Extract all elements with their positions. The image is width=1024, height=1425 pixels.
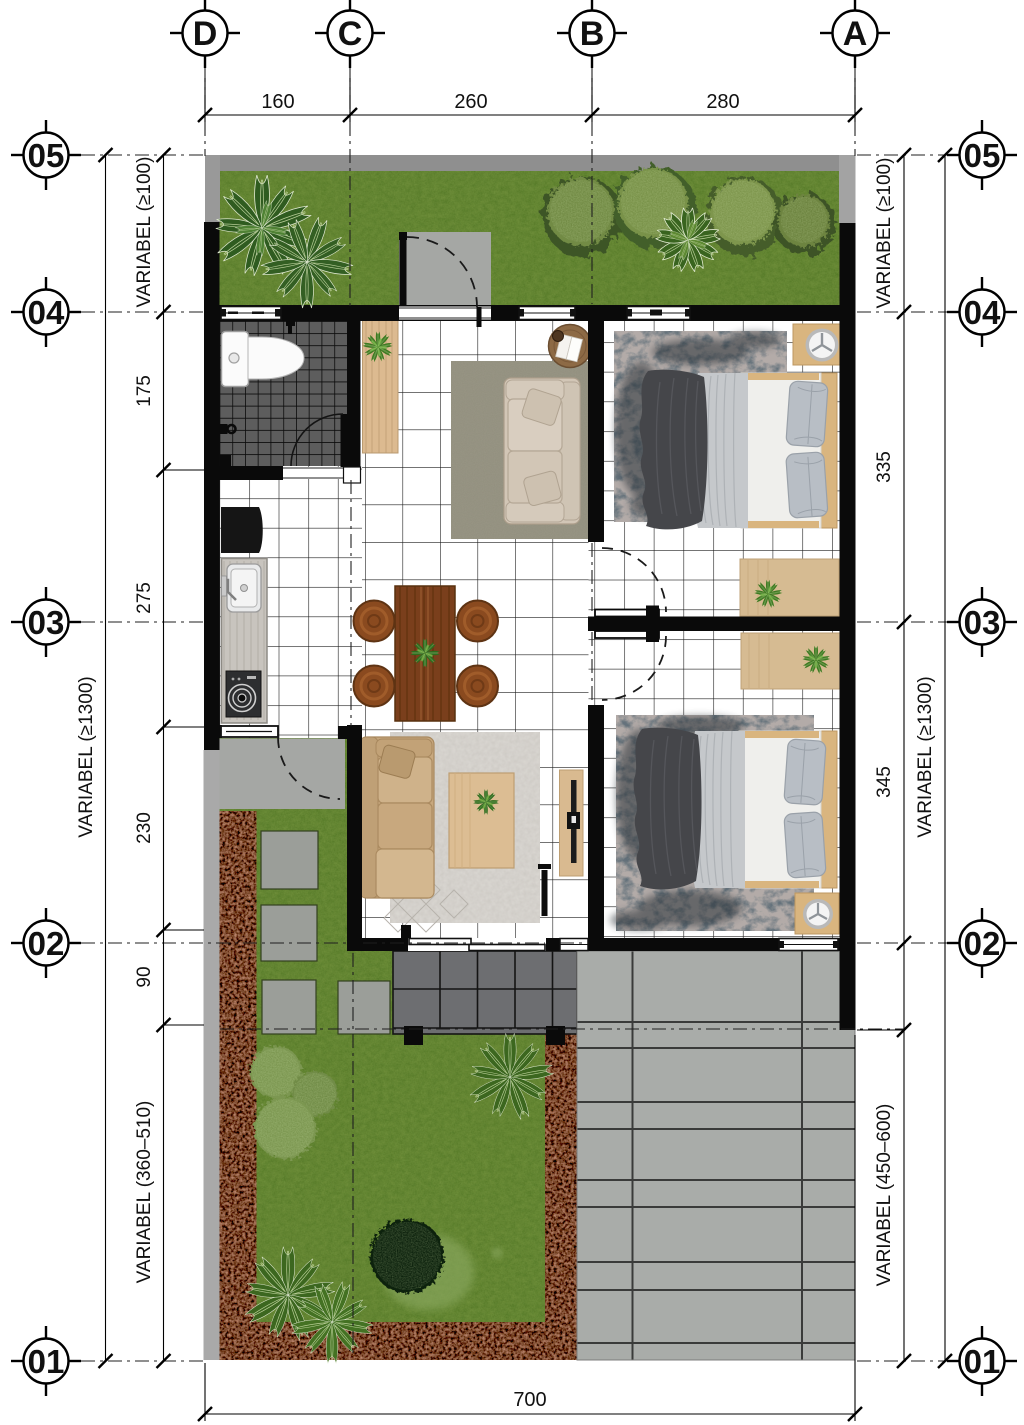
svg-text:230: 230 [134,812,155,844]
svg-text:175: 175 [134,375,155,407]
svg-text:01: 01 [964,1343,1001,1380]
svg-text:335: 335 [874,451,895,483]
svg-text:700: 700 [513,1389,546,1411]
svg-text:02: 02 [28,925,65,962]
svg-text:VARIABEL (450–600): VARIABEL (450–600) [874,1104,895,1287]
svg-text:VARIABEL (≥100): VARIABEL (≥100) [134,157,155,308]
svg-text:345: 345 [874,766,895,798]
svg-text:D: D [193,15,218,53]
svg-text:VARIABEL (≥1300): VARIABEL (≥1300) [915,676,936,837]
svg-text:04: 04 [28,294,65,331]
svg-text:VARIABEL (≥1300): VARIABEL (≥1300) [76,676,97,837]
svg-text:04: 04 [964,294,1001,331]
svg-text:01: 01 [28,1343,65,1380]
svg-text:260: 260 [454,91,487,113]
svg-text:05: 05 [964,137,1001,174]
svg-text:VARIABEL (360–510): VARIABEL (360–510) [134,1101,155,1284]
svg-text:160: 160 [261,91,294,113]
svg-text:02: 02 [964,925,1001,962]
svg-text:B: B [580,15,605,53]
svg-text:VARIABEL (≥100): VARIABEL (≥100) [874,158,895,309]
svg-text:C: C [338,15,363,53]
svg-text:275: 275 [134,582,155,614]
svg-text:A: A [843,15,868,53]
svg-text:90: 90 [134,966,155,987]
svg-text:03: 03 [964,604,1001,641]
svg-text:280: 280 [706,91,739,113]
svg-text:03: 03 [28,604,65,641]
svg-text:05: 05 [28,137,65,174]
